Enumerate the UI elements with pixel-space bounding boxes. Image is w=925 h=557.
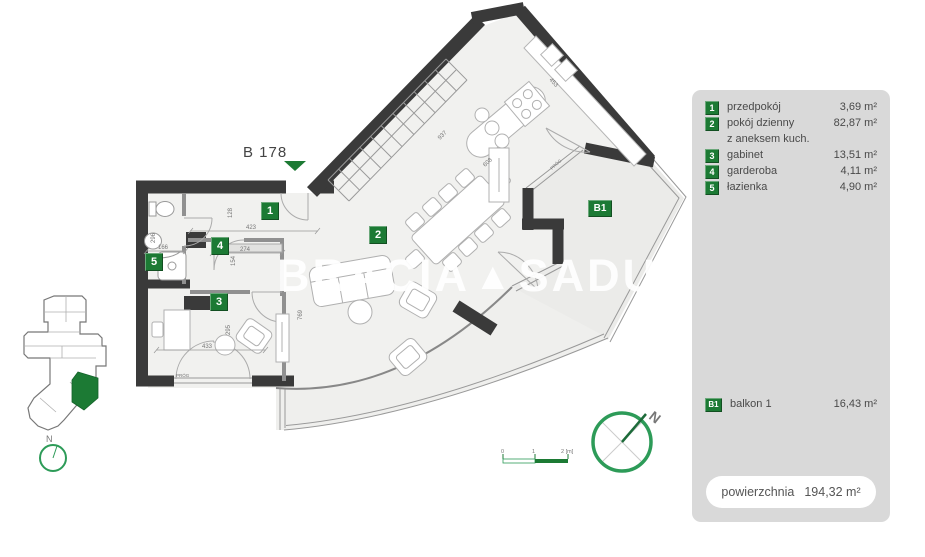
balcony-badge: B1 [705, 398, 722, 412]
total-area-box: powierzchnia 194,32 m² [706, 476, 876, 508]
room-area: 13,51 m² [834, 149, 877, 161]
room-area: 3,69 m² [840, 101, 877, 113]
room-label: łazienka [727, 181, 840, 193]
bar-stool [485, 121, 499, 135]
room-marker-3: 3 [210, 293, 228, 311]
room-number-badge: 4 [705, 165, 719, 179]
room-marker-1: 1 [261, 202, 279, 220]
room-area: 4,90 m² [840, 181, 877, 193]
dim-label: 769 [298, 309, 304, 320]
keyplan-north-needle [53, 446, 57, 458]
compass-icon: N [593, 408, 664, 471]
room-label: pokój dzienny [727, 117, 834, 129]
legend-item: 3 gabinet 13,51 m² [705, 149, 877, 163]
dim-label: 274 [240, 247, 251, 253]
room-label: gabinet [727, 149, 834, 161]
building-outline [24, 296, 106, 430]
total-area-label: powierzchnia [721, 485, 794, 499]
dim-label: 166 [158, 245, 169, 251]
highlighted-unit [72, 372, 98, 410]
room-label-line2: z aneksem kuch. [727, 133, 877, 145]
key-plan: N [24, 296, 106, 471]
bar-stool [495, 134, 509, 148]
legend-item: 2 pokój dzienny 82,87 m² [705, 117, 877, 131]
coffee-table [348, 300, 372, 324]
balcony-area: 16,43 m² [834, 398, 877, 410]
scale-bar: 0 1 2 [m] [501, 449, 574, 463]
legend-item: 4 garderoba 4,11 m² [705, 165, 877, 179]
north-needle [622, 414, 646, 442]
dim-label: 433 [202, 344, 213, 350]
badge-spacer [705, 133, 719, 147]
legend-item-continuation: z aneksem kuch. [705, 133, 877, 147]
compass-north-label: N [646, 408, 664, 427]
room-number-badge: 1 [705, 101, 719, 115]
toilet [149, 202, 174, 217]
floorplan-page: 423 274 166 433 296 128 154 295 769 937 … [0, 0, 925, 557]
legend-item: 1 przedpokój 3,69 m² [705, 101, 877, 115]
legend-item: 5 łazienka 4,90 m² [705, 181, 877, 195]
room-marker-4: 4 [211, 237, 229, 255]
dim-label: 296 [151, 232, 157, 243]
keyplan-north-label: N [46, 434, 53, 444]
dim-label: 128 [228, 207, 234, 218]
room-marker-5: 5 [145, 253, 163, 271]
bar-stool [475, 108, 489, 122]
room-area: 82,87 m² [834, 117, 877, 129]
legend-balcony-item: B1 balkon 1 16,43 m² [705, 398, 877, 412]
tv-cabinet [276, 314, 289, 362]
room-area: 4,11 m² [841, 165, 877, 177]
room-number-badge: 5 [705, 181, 719, 195]
room-marker-2: 2 [369, 226, 387, 244]
room-number-badge: 2 [705, 117, 719, 131]
pouf [215, 335, 235, 355]
balcony-marker-b1: B1 [588, 200, 612, 217]
threshold-label: PRÓG [176, 372, 190, 378]
entrance-triangle-icon [284, 161, 306, 171]
dim-label: 154 [231, 255, 237, 266]
balcony-label: balkon 1 [730, 398, 834, 410]
unit-label: B 178 [243, 144, 287, 161]
scale-tick-label: 2 [m] [561, 449, 574, 455]
dim-label: 295 [226, 324, 232, 335]
room-label: garderoba [727, 165, 841, 177]
room-number-badge: 3 [705, 149, 719, 163]
sideboard [489, 148, 509, 202]
dim-label: 423 [246, 225, 257, 231]
total-area-value: 194,32 m² [804, 485, 860, 499]
legend-panel: 1 przedpokój 3,69 m² 2 pokój dzienny 82,… [692, 90, 890, 522]
room-label: przedpokój [727, 101, 840, 113]
